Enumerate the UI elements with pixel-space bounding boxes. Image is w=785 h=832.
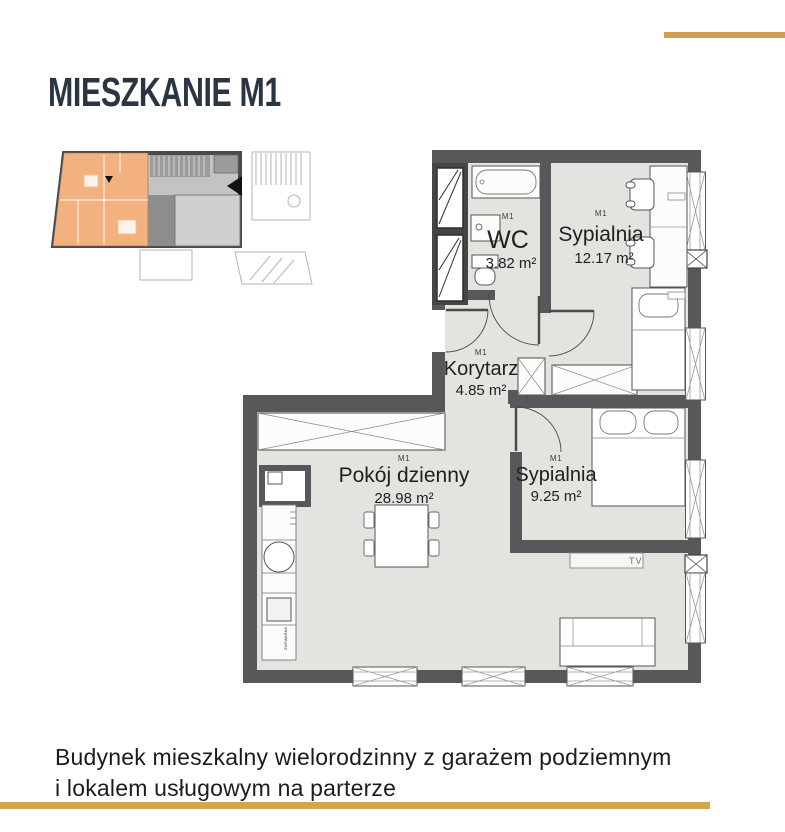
- svg-text:WC: WC: [487, 226, 529, 254]
- desk: [650, 166, 687, 287]
- floorplan-canvas: TV ZMYWA: [0, 0, 785, 832]
- minimap-core: [148, 195, 175, 246]
- window: [567, 667, 633, 686]
- desk-chair: [626, 179, 654, 210]
- dining-table: [364, 505, 439, 567]
- sofa: [560, 618, 655, 666]
- svg-text:28.98 m²: 28.98 m²: [374, 490, 433, 507]
- kitchen-appliance-label: ZMYWARKA: [283, 627, 288, 650]
- svg-text:12.17 m²: 12.17 m²: [574, 250, 633, 267]
- window: [686, 573, 706, 643]
- minimap-neighbor-unit: [175, 195, 240, 246]
- svg-text:M1: M1: [550, 454, 562, 463]
- building-overview-minimap: [53, 152, 312, 284]
- svg-text:Korytarz: Korytarz: [444, 358, 518, 380]
- svg-text:9.25 m²: 9.25 m²: [531, 488, 582, 505]
- window: [686, 172, 706, 250]
- tv-cabinet: TV: [570, 553, 643, 568]
- main-floorplan: TV ZMYWA: [243, 150, 707, 686]
- svg-text:Pokój dzienny: Pokój dzienny: [339, 464, 470, 487]
- tv-label: TV: [629, 556, 643, 566]
- kitchen-counter: [262, 505, 296, 660]
- floorplan-page: { "page": { "title": "MIESZKANIE M1" }, …: [0, 0, 785, 832]
- kitchen-sink: [264, 542, 294, 572]
- radiator: [668, 292, 685, 299]
- svg-text:Sypialnia: Sypialnia: [515, 464, 597, 486]
- single-bed: [632, 288, 685, 390]
- window: [353, 667, 417, 686]
- window: [686, 328, 706, 400]
- windows-bottom: [353, 667, 633, 686]
- svg-text:Sypialnia: Sypialnia: [558, 223, 644, 246]
- radiator: [668, 193, 685, 200]
- stove: [267, 598, 291, 621]
- svg-text:M1: M1: [475, 348, 487, 357]
- svg-text:M1: M1: [398, 454, 410, 463]
- shaft-column: [432, 163, 468, 305]
- svg-text:M1: M1: [595, 209, 607, 218]
- svg-text:3.82 m²: 3.82 m²: [486, 255, 537, 272]
- double-bed: [592, 408, 685, 506]
- window: [462, 667, 525, 686]
- minimap-elevator: [214, 155, 238, 173]
- window: [686, 460, 706, 538]
- svg-text:4.85 m²: 4.85 m²: [456, 382, 507, 399]
- svg-text:M1: M1: [502, 212, 514, 221]
